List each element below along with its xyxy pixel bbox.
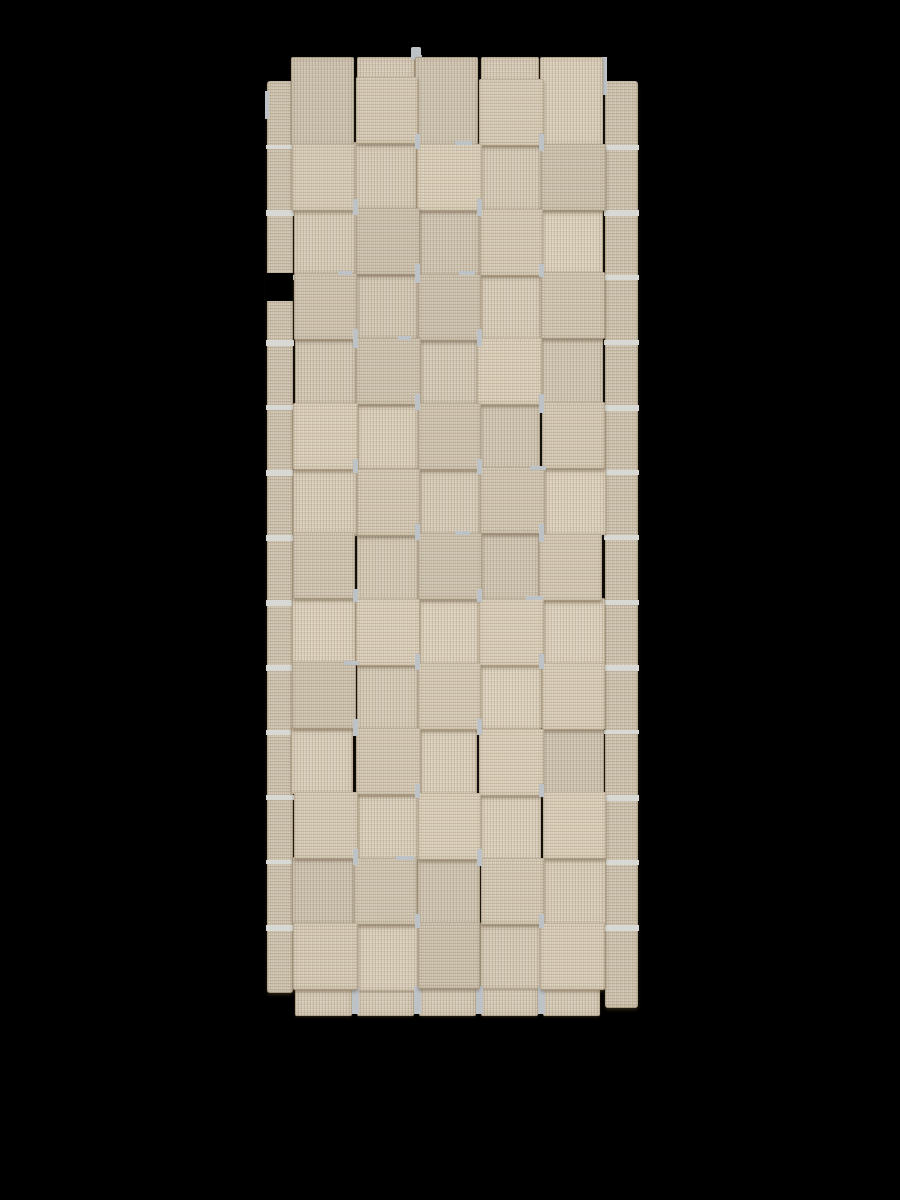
weave-gap xyxy=(353,199,358,215)
weave-gap xyxy=(415,134,420,149)
weave-gap xyxy=(604,340,639,345)
weave-square xyxy=(479,79,544,146)
weave-gap xyxy=(266,405,294,410)
weave-gap xyxy=(352,986,359,1014)
weave-square xyxy=(294,273,357,340)
weave-gap xyxy=(539,264,544,277)
weave-gap xyxy=(396,856,414,860)
weave-square xyxy=(295,337,358,404)
product-photo xyxy=(0,0,900,1200)
weave-square xyxy=(418,468,482,535)
weave-square xyxy=(481,858,544,925)
weave-gap xyxy=(604,470,639,475)
weave-square xyxy=(540,338,603,405)
weave-gap xyxy=(530,466,547,470)
weave-square xyxy=(292,662,356,729)
weave-square xyxy=(539,534,602,601)
weave-square xyxy=(355,402,419,469)
weave-square xyxy=(356,338,421,405)
weave-gap xyxy=(353,589,358,602)
weave-gap xyxy=(604,730,639,734)
weave-square xyxy=(543,468,606,535)
weave-square xyxy=(356,599,420,666)
weave-gap xyxy=(266,795,294,800)
weave-square xyxy=(356,208,420,275)
weave-square xyxy=(479,662,542,729)
weave-square xyxy=(356,77,418,144)
weave-square xyxy=(357,469,420,536)
weave-square xyxy=(542,663,605,730)
weave-gap xyxy=(477,589,482,602)
weave-gap xyxy=(604,275,639,280)
weave-square xyxy=(293,469,358,536)
weave-gap xyxy=(344,661,360,665)
weave-square xyxy=(357,663,421,730)
weave-square xyxy=(480,467,545,534)
weave-square xyxy=(418,274,481,341)
weave-square xyxy=(479,729,544,796)
weave-gap xyxy=(353,329,358,348)
weave-gap xyxy=(398,336,411,340)
weave-gap xyxy=(338,271,353,275)
weave-square xyxy=(417,144,482,211)
weave-square xyxy=(479,599,544,666)
weave-gap xyxy=(415,264,420,283)
weave-square xyxy=(356,793,419,860)
weave-square xyxy=(353,142,417,209)
weave-gap xyxy=(477,199,482,216)
weave-gap xyxy=(604,145,639,150)
weave-square xyxy=(418,209,481,276)
weave-gap xyxy=(455,141,472,145)
weave-gap xyxy=(539,134,544,151)
weave-gap xyxy=(604,600,639,605)
weave-square xyxy=(415,728,477,795)
weave-square xyxy=(541,144,606,211)
weave-square xyxy=(292,597,356,664)
weave-square xyxy=(418,663,481,730)
weave-square xyxy=(291,57,354,145)
weave-gap xyxy=(604,860,639,865)
weave-gap xyxy=(415,524,420,540)
weave-square xyxy=(293,403,358,470)
weave-gap xyxy=(476,986,483,1014)
background: { "image": { "type": "product-photo", "s… xyxy=(0,0,900,1200)
weave-gap xyxy=(539,914,544,928)
weave-gap xyxy=(538,986,545,1014)
rug-right-tail-column xyxy=(605,81,638,1008)
weave-square xyxy=(417,859,480,926)
weave-square xyxy=(480,209,543,276)
weave-square xyxy=(542,598,605,665)
weave-square xyxy=(539,208,603,275)
weave-square xyxy=(357,924,421,991)
weave-square xyxy=(478,143,543,210)
weave-gap xyxy=(266,210,294,216)
weave-square xyxy=(418,922,480,989)
weave-square xyxy=(479,273,542,340)
weave-gap xyxy=(266,730,294,735)
weave-gap xyxy=(539,654,544,669)
weave-gap xyxy=(539,524,544,542)
weave-gap xyxy=(604,795,639,801)
weave-square xyxy=(291,727,353,794)
weave-gap xyxy=(604,535,639,540)
weave-gap xyxy=(526,596,543,600)
weave-gap xyxy=(415,394,420,410)
weave-square xyxy=(478,794,541,861)
weave-square xyxy=(542,858,606,925)
weave-gap xyxy=(266,470,294,476)
weave-gap xyxy=(415,784,420,798)
weave-square xyxy=(417,337,480,404)
weave-square xyxy=(542,402,605,469)
weave-gap xyxy=(266,340,294,346)
weave-square xyxy=(540,729,604,796)
weave-square xyxy=(354,858,417,925)
weave-square xyxy=(480,922,544,989)
weave-square xyxy=(418,793,481,860)
weave-gap xyxy=(266,665,294,671)
weave-square xyxy=(357,534,422,601)
weave-gap xyxy=(414,986,421,1014)
weave-square xyxy=(418,403,481,470)
weave-square xyxy=(415,57,478,145)
weave-gap xyxy=(353,459,358,473)
weave-gap xyxy=(455,531,470,535)
weave-square xyxy=(417,598,481,665)
weave-gap xyxy=(604,925,639,931)
weave-square xyxy=(540,57,603,145)
weave-square xyxy=(540,923,605,990)
rug-edge-notch xyxy=(265,273,293,301)
weave-gap xyxy=(353,719,358,736)
weave-square xyxy=(356,272,419,339)
weave-square xyxy=(294,792,358,859)
weave-square xyxy=(477,403,540,470)
weave-gap xyxy=(477,849,482,866)
weave-square xyxy=(294,207,358,274)
weave-square xyxy=(477,338,542,405)
weave-gap xyxy=(266,145,294,149)
weave-gap xyxy=(266,600,294,606)
weave-square xyxy=(418,533,482,600)
weave-gap xyxy=(266,925,294,931)
weave-gap xyxy=(604,665,639,671)
weave-square xyxy=(478,533,543,600)
weave-gap xyxy=(539,784,544,797)
weave-square xyxy=(293,923,358,990)
weave-square xyxy=(292,857,356,924)
weave-gap xyxy=(477,459,482,474)
weave-square xyxy=(543,792,606,859)
weave-gap xyxy=(266,860,294,864)
weave-square xyxy=(541,272,605,339)
weave-gap xyxy=(266,535,294,541)
weave-square xyxy=(292,144,355,211)
weave-square xyxy=(356,728,421,795)
weave-gap xyxy=(415,654,420,670)
weave-gap xyxy=(539,394,544,413)
weave-gap xyxy=(353,849,358,865)
weave-gap xyxy=(415,914,420,928)
weave-gap xyxy=(477,329,482,346)
weave-gap xyxy=(265,91,269,119)
weave-gap xyxy=(477,719,482,735)
weave-gap xyxy=(459,271,475,275)
weave-gap xyxy=(604,405,639,411)
weave-square xyxy=(293,532,355,599)
weave-gap xyxy=(604,210,639,216)
rug-image xyxy=(265,47,640,1022)
